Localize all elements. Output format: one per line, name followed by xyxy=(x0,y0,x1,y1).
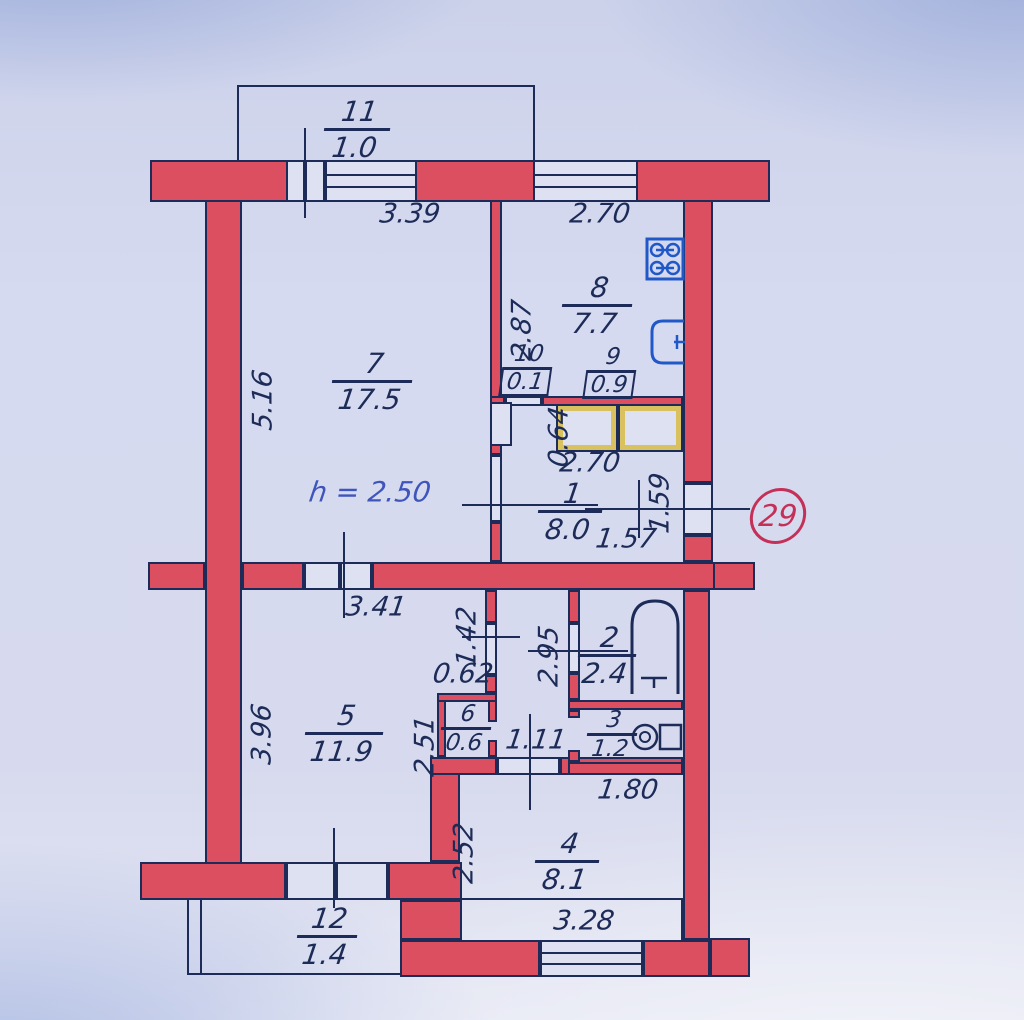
door-room7 xyxy=(490,455,502,522)
dim-room4-depth: 2.52 xyxy=(449,821,480,885)
dim-line-balcony12 xyxy=(333,828,335,908)
room-8-area: 7.7 xyxy=(557,307,632,339)
room-7-number: 7 xyxy=(332,348,417,383)
balcony-door-pane-left xyxy=(286,160,305,202)
window-room7 xyxy=(325,160,417,202)
dim-room4-width: 3.28 xyxy=(552,906,616,937)
room-9-number: 9 xyxy=(586,345,640,373)
opening-mid-wall-left xyxy=(304,562,340,590)
room-label-4: 4 8.1 xyxy=(530,828,604,896)
dim-corridor-width: 1.11 xyxy=(504,725,568,756)
room-label-6: 6 0.6 xyxy=(437,702,494,755)
room-3-area: 1.2 xyxy=(583,736,637,761)
dim-room5-depth: 3.96 xyxy=(247,702,278,766)
dim-kitchen-depth: 2.87 xyxy=(507,298,538,362)
room-label-7: 7 17.5 xyxy=(327,348,417,416)
room-12-area: 1.4 xyxy=(292,938,357,970)
wall-middle-left xyxy=(242,562,304,590)
wall-right-upper xyxy=(683,200,713,483)
floor-plan: 11 1.0 7 17.5 8 7.7 10 0.1 9 0.9 1 8.0 2… xyxy=(0,0,1024,1020)
dim-balcony11-width: 3.39 xyxy=(378,199,442,230)
dim-line-balcony11 xyxy=(304,128,306,218)
wall-toilet-left-lower xyxy=(568,750,580,762)
room-label-5: 5 11.9 xyxy=(300,700,388,768)
room-3-number: 3 xyxy=(587,708,641,736)
wall-right-mid-stub xyxy=(713,562,755,590)
room-11-area: 1.0 xyxy=(319,131,390,163)
room-4-area: 8.1 xyxy=(530,863,599,895)
room-label-8: 8 7.7 xyxy=(557,272,637,340)
dim-entry-depth: 1.59 xyxy=(645,471,676,535)
wall-right-below-entry xyxy=(683,535,713,562)
window-kitchen xyxy=(533,160,638,202)
room-11-number: 11 xyxy=(324,96,395,131)
door-leaf-kitchen xyxy=(490,402,512,446)
room-4-number: 4 xyxy=(535,828,604,863)
room-2-area: 2.4 xyxy=(573,657,636,689)
room-label-2: 2 2.4 xyxy=(573,622,641,690)
wall-top xyxy=(150,160,770,202)
wall-room7-hall-lower xyxy=(490,522,502,562)
dim-kitchen-width: 2.70 xyxy=(568,199,632,230)
balcony12-door-pane-left xyxy=(286,862,336,900)
wall-toilet-left-upper xyxy=(568,710,580,718)
room-2-number: 2 xyxy=(578,622,641,657)
wall-bottom-right xyxy=(643,940,710,977)
room-6-number: 6 xyxy=(441,702,495,730)
wall-room4-left-lower xyxy=(400,900,462,940)
wall-toilet-bottom xyxy=(568,762,683,775)
room-1-number: 1 xyxy=(538,478,607,513)
dim-hall-width: 2.70 xyxy=(558,448,622,479)
wall-left-mid-stub xyxy=(148,562,205,590)
sink-icon xyxy=(648,318,686,366)
room-5-number: 5 xyxy=(305,700,388,735)
wall-room5-bottom-left xyxy=(140,862,286,900)
wall-bottom-corner xyxy=(710,938,750,977)
balcony-12-inner-edge xyxy=(200,898,202,975)
room-12-number: 12 xyxy=(297,903,362,938)
wall-right-lower xyxy=(683,590,710,940)
dim-toilet-width: 1.80 xyxy=(596,775,660,806)
wall-bottom-left xyxy=(400,940,540,977)
dim-corridor-depth: 2.51 xyxy=(410,714,441,778)
room-label-3: 3 1.2 xyxy=(583,708,640,761)
dim-room7-depth: 5.16 xyxy=(248,368,279,432)
balcony-door-pane-right xyxy=(305,160,325,202)
dim-nook-width: 0.62 xyxy=(431,659,495,690)
room-label-12: 12 1.4 xyxy=(292,903,362,971)
dim-bath-depth: 2.95 xyxy=(534,624,565,688)
room-7-area: 17.5 xyxy=(327,383,412,415)
room-1-area: 8.0 xyxy=(533,513,602,545)
stove-icon xyxy=(645,237,685,281)
room-label-9: 9 0.9 xyxy=(582,345,640,399)
note-ceiling-height: h = 2.50 xyxy=(307,476,433,509)
wall-room5-right-upper xyxy=(485,590,497,623)
wall-left xyxy=(205,200,242,900)
room-5-area: 11.9 xyxy=(300,735,383,767)
unit-number: 29 xyxy=(757,499,799,534)
balcony12-door-pane-right xyxy=(336,862,388,900)
dim-line-room5-width xyxy=(343,532,345,618)
unit-number-badge: 29 xyxy=(747,488,809,544)
room-label-11: 11 1.0 xyxy=(319,96,395,164)
room-9-area: 0.9 xyxy=(582,373,636,399)
wardrobe-9 xyxy=(618,404,683,452)
room-8-number: 8 xyxy=(562,272,637,307)
room-6-area: 0.6 xyxy=(437,730,491,755)
window-room4 xyxy=(540,940,643,977)
wall-closet6-right-lower xyxy=(488,740,497,757)
room-10-area: 0.1 xyxy=(498,370,552,396)
wall-bath-left-upper xyxy=(568,590,580,623)
wall-middle-right xyxy=(372,562,755,590)
dim-room5-width: 3.41 xyxy=(344,592,408,623)
